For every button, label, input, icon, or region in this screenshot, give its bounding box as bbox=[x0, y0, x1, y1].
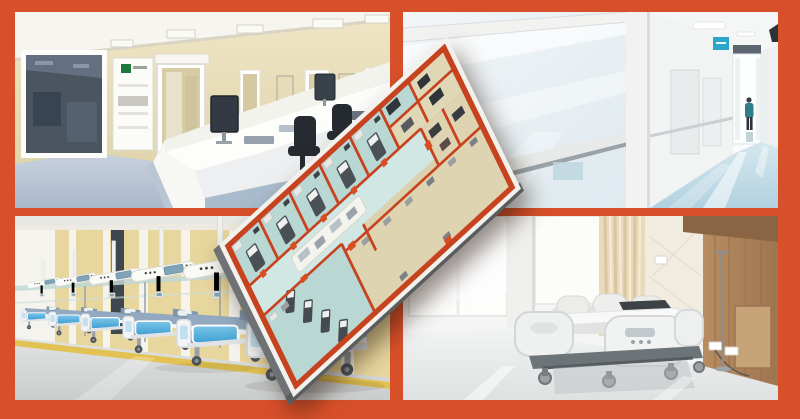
corridor-door bbox=[671, 70, 699, 154]
supply-cabinet bbox=[113, 58, 153, 150]
ceiling-light bbox=[313, 19, 343, 28]
green-sign-icon bbox=[121, 64, 131, 73]
photo-corridor bbox=[403, 12, 778, 208]
corridor bbox=[650, 12, 778, 208]
photo-icu-ward bbox=[15, 216, 390, 400]
photo-patient-room bbox=[403, 216, 778, 400]
outlet bbox=[725, 347, 738, 355]
photo-nurse-station bbox=[15, 12, 390, 208]
ceiling-light bbox=[365, 15, 389, 23]
far-door-header bbox=[733, 45, 761, 54]
wall-control-panel bbox=[655, 256, 667, 264]
ceiling-light bbox=[237, 25, 263, 33]
monitor bbox=[211, 96, 238, 132]
glass-wall bbox=[403, 12, 628, 208]
collage-frame bbox=[0, 0, 800, 419]
observation-window bbox=[21, 50, 107, 158]
chair bbox=[294, 116, 316, 150]
outlet bbox=[709, 342, 722, 350]
wall-pillar bbox=[626, 12, 650, 208]
wood-door-panel bbox=[735, 306, 771, 368]
chair bbox=[332, 104, 352, 134]
keyboard bbox=[244, 136, 274, 144]
ceiling-light bbox=[111, 40, 133, 47]
ceiling-light bbox=[167, 30, 195, 38]
monitor bbox=[315, 74, 335, 100]
